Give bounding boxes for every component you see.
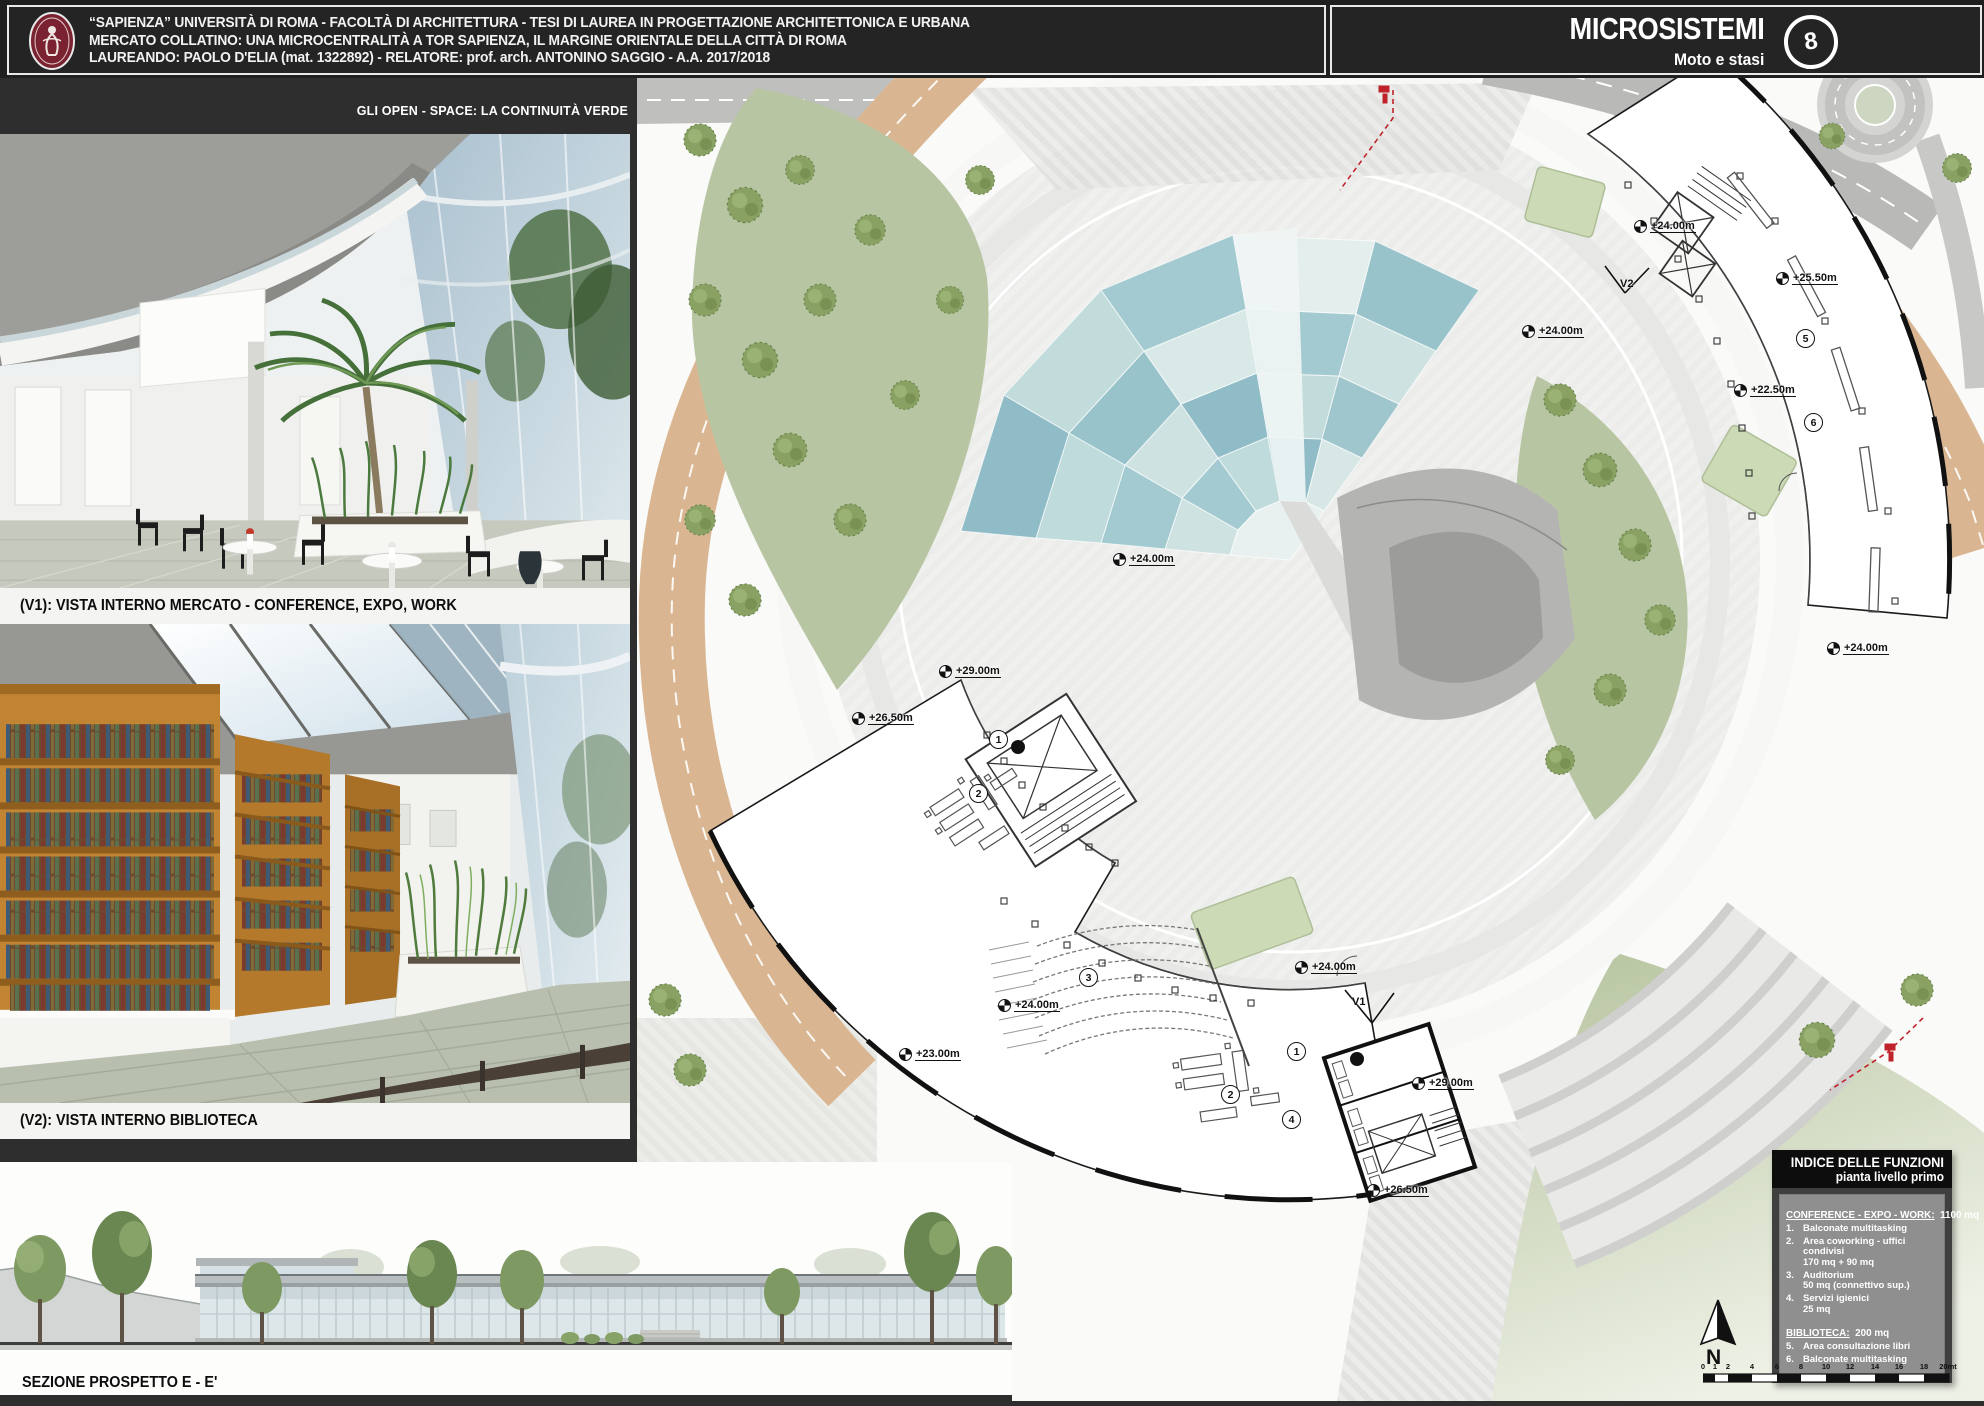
header-line-1: “SAPIENZA” UNIVERSITÀ DI ROMA - FACOLTÀ …	[89, 14, 970, 32]
section-elevation-panel	[0, 1162, 1012, 1401]
legend-section-heading: CONFERENCE - EXPO - WORK:	[1786, 1209, 1935, 1221]
legend-item-detail: 170 mq + 90 mq	[1803, 1258, 1938, 1269]
plan-function-marker: 6	[1804, 413, 1823, 432]
spot-elevation: +24.00m	[1634, 220, 1696, 233]
section-elevation-drawing	[0, 1162, 1012, 1401]
scale-tick: 8	[1799, 1362, 1803, 1371]
spot-elevation: +24.00m	[1113, 553, 1175, 566]
benchmark-icon	[1522, 325, 1535, 338]
scale-tick: 16	[1895, 1362, 1903, 1371]
header-line-3: LAUREANDO: PAOLO D'ELIA (mat. 1322892) -…	[89, 49, 970, 67]
title-bar: “SAPIENZA” UNIVERSITÀ DI ROMA - FACOLTÀ …	[0, 0, 1984, 78]
benchmark-icon	[1367, 1184, 1380, 1197]
scale-tick: 0	[1701, 1362, 1705, 1371]
scale-tick: 12	[1846, 1362, 1854, 1371]
legend-body: CONFERENCE - EXPO - WORK: 1100 mq 1.Balc…	[1779, 1194, 1945, 1376]
spot-elevation: +22.50m	[1734, 384, 1796, 397]
benchmark-icon	[1734, 384, 1747, 397]
legend-item: 4.Servizi igienici	[1786, 1294, 1938, 1305]
benchmark-icon	[852, 712, 865, 725]
caption-v2: (V2): VISTA INTERNO BIBLIOTECA	[0, 1103, 630, 1139]
board-number-badge: 8	[1781, 12, 1842, 73]
market-interior-render	[0, 134, 630, 588]
library-interior-render	[0, 624, 630, 1103]
header-right-box: MICROSISTEMI Moto e stasi 8	[1330, 5, 1982, 75]
caption-section: SEZIONE PROSPETTO E - E'	[22, 1374, 217, 1392]
scale-tick: 4	[1750, 1362, 1754, 1371]
scale-tick: 1	[1713, 1362, 1717, 1371]
plan-function-marker: 1	[1287, 1042, 1306, 1061]
plan-function-marker: 3	[1079, 968, 1098, 987]
plan-function-marker: 2	[1221, 1085, 1240, 1104]
scale-tick: 10	[1822, 1362, 1830, 1371]
benchmark-icon	[1412, 1077, 1425, 1090]
benchmark-icon	[1634, 220, 1647, 233]
legend-item: 5.Area consultazione libri	[1786, 1342, 1938, 1353]
plan-function-marker: 5	[1796, 329, 1815, 348]
board-subtitle: Moto e stasi	[1560, 50, 1764, 70]
benchmark-icon	[939, 665, 952, 678]
benchmark-icon	[1295, 961, 1308, 974]
legend-section-heading: BIBLIOTECA:	[1786, 1327, 1850, 1339]
benchmark-icon	[1827, 642, 1840, 655]
plan-function-marker: 1	[989, 730, 1008, 749]
legend-section-area: 1100 mq	[1940, 1209, 1979, 1221]
legend-item: 2.Area coworking - uffici condivisi	[1786, 1237, 1938, 1258]
north-arrow-icon	[1693, 1298, 1743, 1353]
legend-title: INDICE DELLE FUNZIONI pianta livello pri…	[1772, 1150, 1952, 1188]
spot-elevation: +25.50m	[1776, 272, 1838, 285]
render-v2-library	[0, 624, 630, 1108]
bottom-divider	[0, 1395, 1012, 1401]
render-v1-market	[0, 134, 630, 593]
scale-tick: 20mt	[1939, 1362, 1957, 1371]
scale-tick: 6	[1775, 1362, 1779, 1371]
scale-bar: 0 1 2 4 6 8 10 12 14 16 18 20mt	[1703, 1362, 1955, 1392]
legend-item-detail: 50 mq (connettivo sup.)	[1803, 1281, 1938, 1292]
spot-elevation: +29.00m	[1412, 1077, 1474, 1090]
legend-item-detail: 25 mq	[1803, 1305, 1938, 1316]
scale-tick: 14	[1871, 1362, 1879, 1371]
benchmark-icon	[1776, 272, 1789, 285]
function-index-legend: INDICE DELLE FUNZIONI pianta livello pri…	[1772, 1150, 1952, 1383]
benchmark-icon	[1113, 553, 1126, 566]
board-title-block: MICROSISTEMI Moto e stasi	[1543, 11, 1764, 70]
board-title: MICROSISTEMI	[1569, 11, 1764, 47]
caption-open-space: GLI OPEN - SPACE: LA CONTINUITÀ VERDE	[0, 104, 628, 118]
scale-tick: 18	[1920, 1362, 1928, 1371]
spot-elevation: +26.50m	[852, 712, 914, 725]
spot-elevation: +24.00m	[998, 999, 1060, 1012]
benchmark-icon	[998, 999, 1011, 1012]
spot-elevation: +29.00m	[939, 665, 1001, 678]
header-line-2: MERCATO COLLATINO: UNA MICROCENTRALITÀ A…	[89, 32, 970, 50]
plan-function-marker: 4	[1282, 1110, 1301, 1129]
spot-elevation: +24.00m	[1522, 325, 1584, 338]
header-left-box: “SAPIENZA” UNIVERSITÀ DI ROMA - FACOLTÀ …	[7, 5, 1326, 75]
spot-elevation: +24.00m	[1295, 961, 1357, 974]
header-text: “SAPIENZA” UNIVERSITÀ DI ROMA - FACOLTÀ …	[89, 14, 970, 67]
legend-item: 1.Balconate multitasking	[1786, 1224, 1938, 1235]
thesis-board: { "header": { "line1": "\u201cSAPIENZA\u…	[0, 0, 1984, 1401]
benchmark-icon	[899, 1048, 912, 1061]
plan-function-marker: 2	[969, 784, 988, 803]
view-marker-v1: V1	[1352, 996, 1365, 1008]
caption-v1: (V1): VISTA INTERNO MERCATO - CONFERENCE…	[0, 588, 630, 624]
spot-elevation: +23.00m	[899, 1048, 961, 1061]
spot-elevation: +26.50m	[1367, 1184, 1429, 1197]
sapienza-logo	[21, 11, 83, 71]
spot-elevation: +24.00m	[1827, 642, 1889, 655]
view-marker-v2: V2	[1620, 278, 1633, 290]
scale-tick: 2	[1726, 1362, 1730, 1371]
legend-section-area: 200 mq	[1855, 1327, 1889, 1339]
